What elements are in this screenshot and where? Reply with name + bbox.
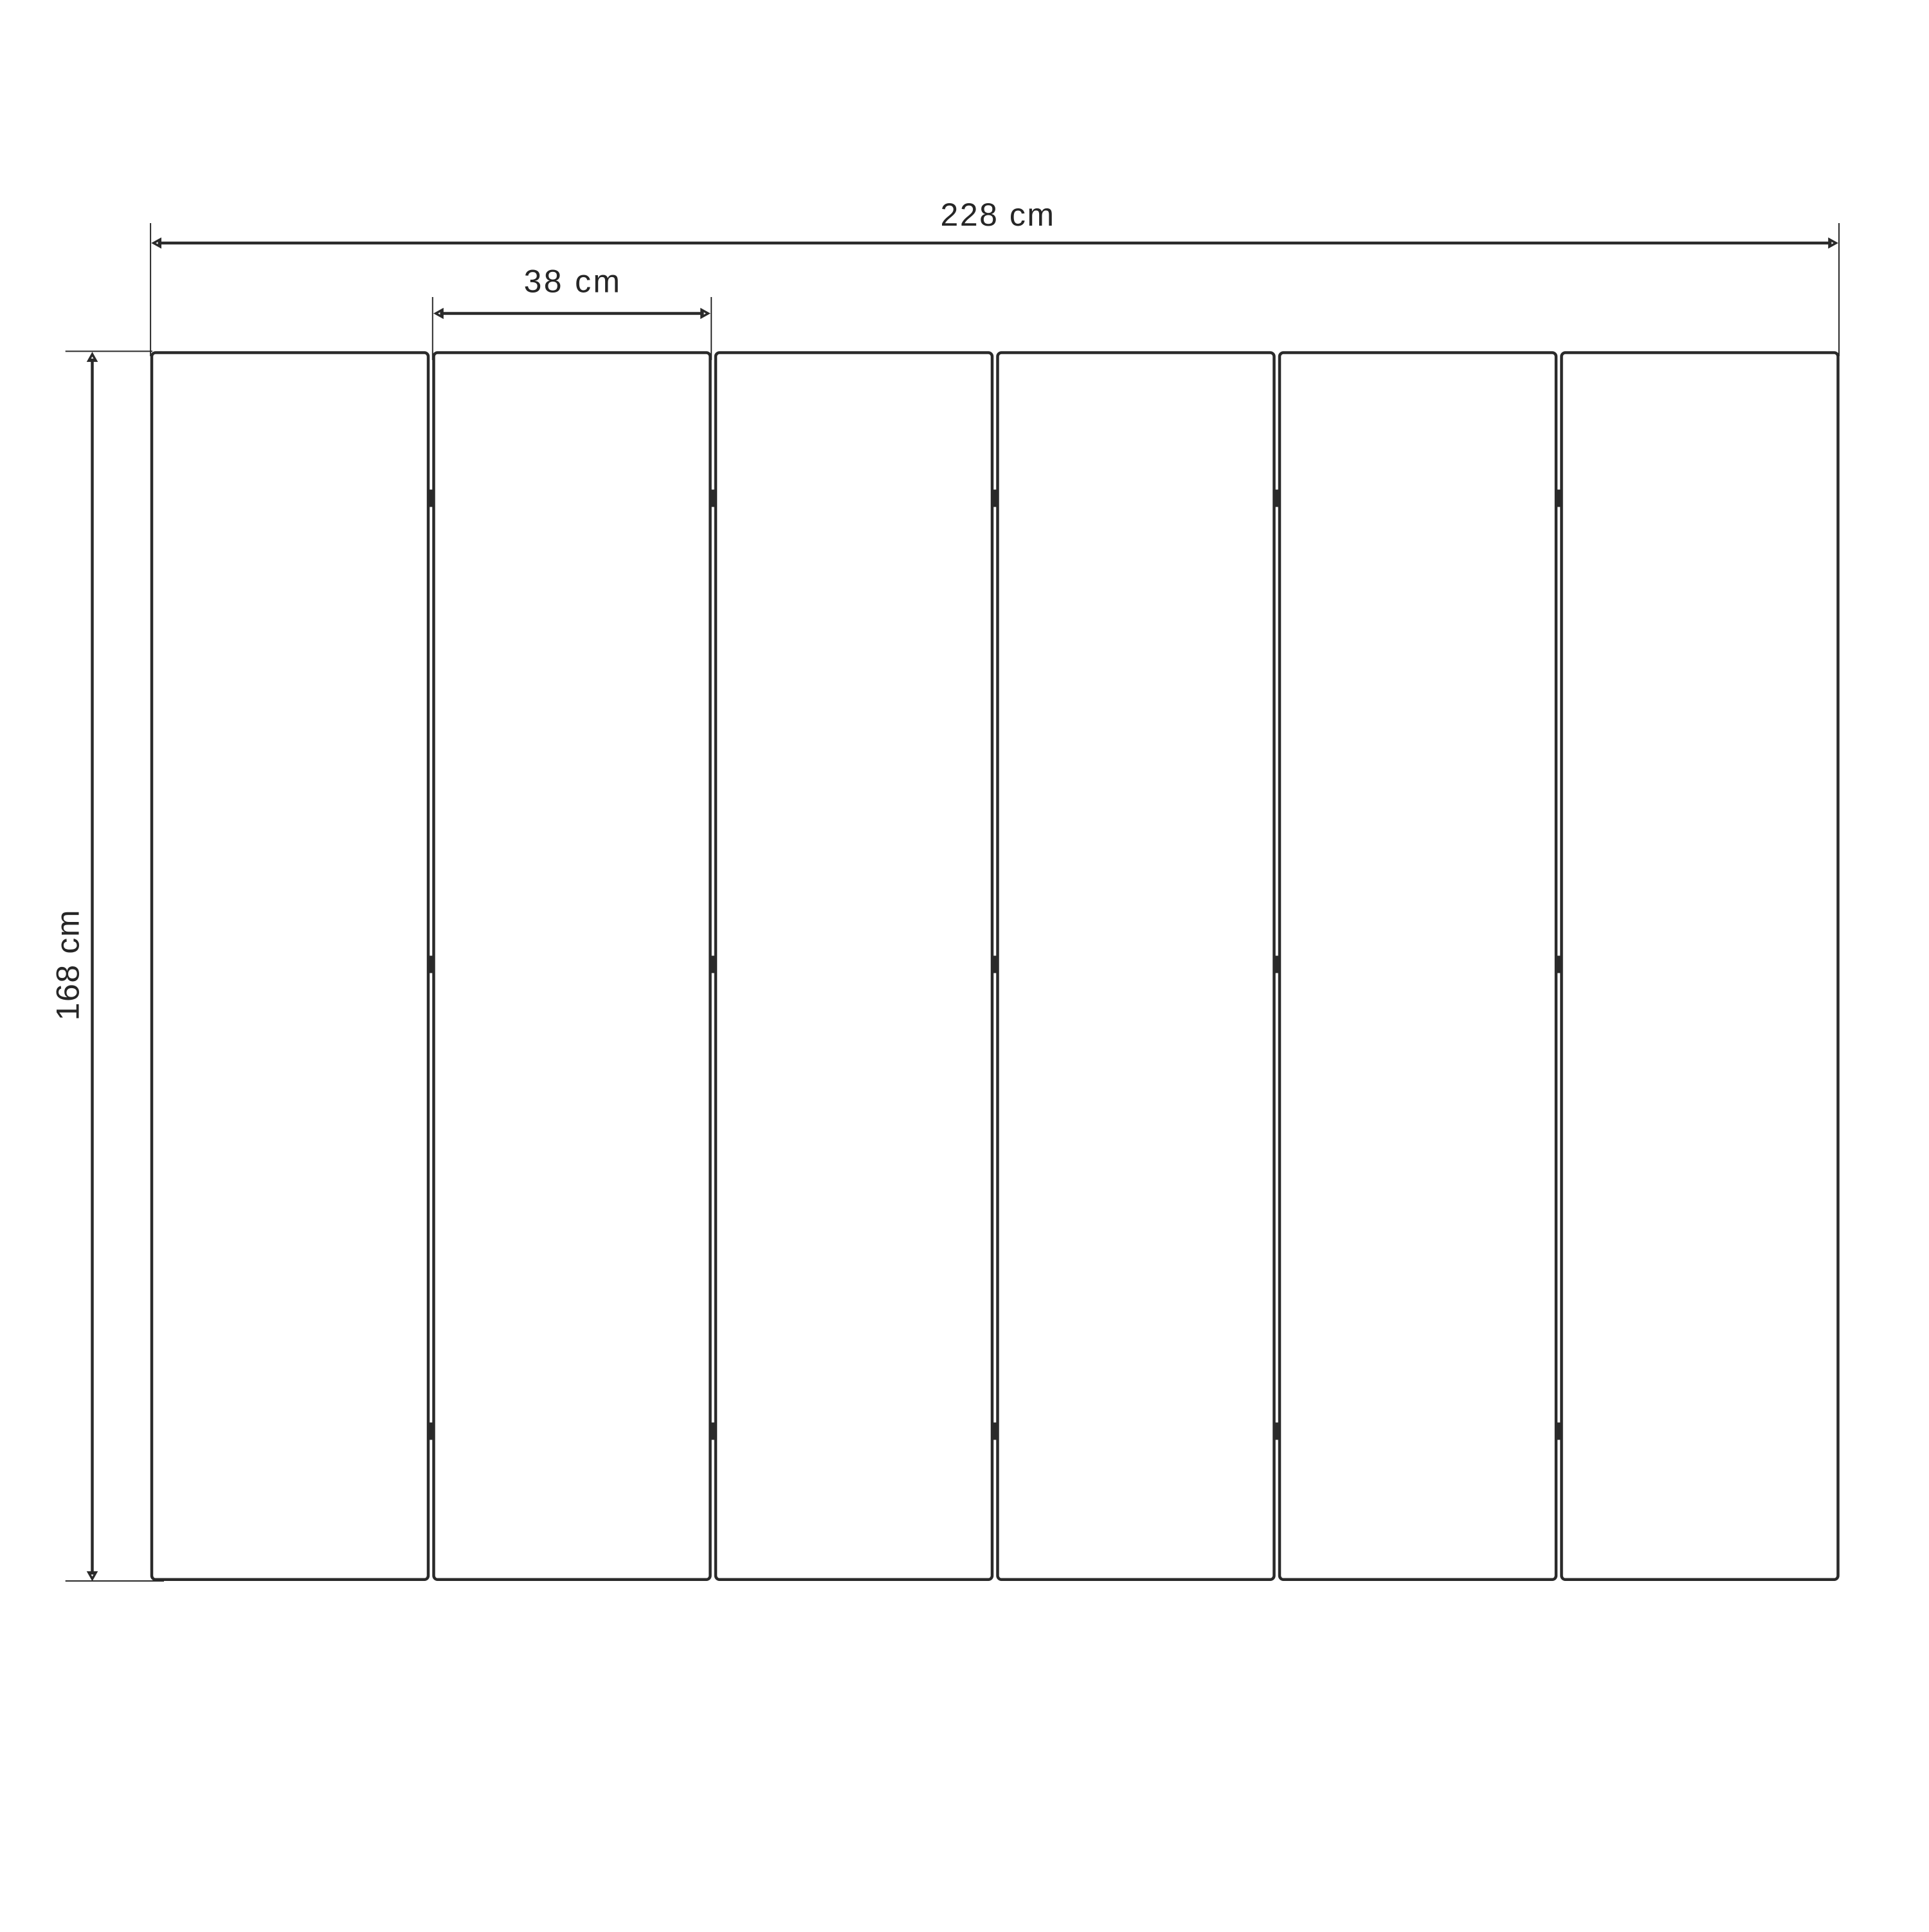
svg-text:38 cm: 38 cm bbox=[524, 264, 622, 300]
svg-text:228 cm: 228 cm bbox=[941, 197, 1056, 233]
svg-text:168 cm: 168 cm bbox=[50, 909, 86, 1021]
